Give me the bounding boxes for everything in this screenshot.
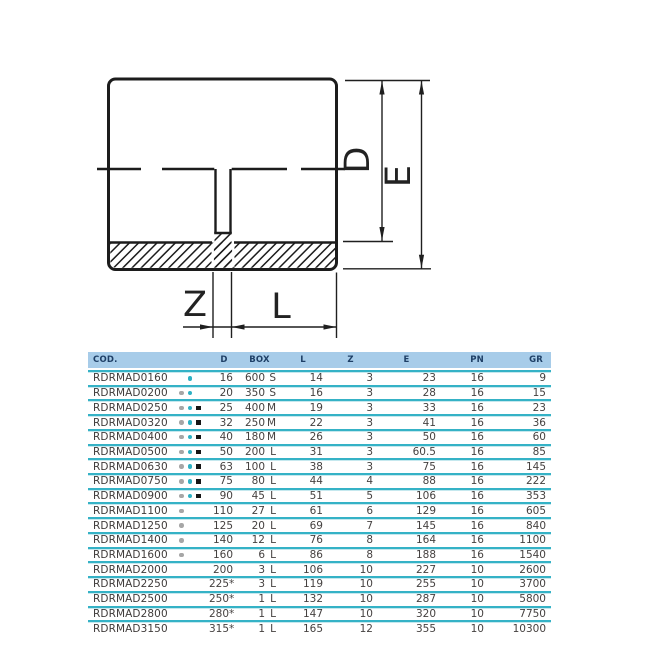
value-box: 1 L bbox=[239, 593, 280, 605]
value-pn: 10 bbox=[438, 564, 488, 576]
value-pn: 16 bbox=[438, 417, 488, 429]
value-z: 3 bbox=[326, 372, 375, 384]
value-pn: 16 bbox=[438, 431, 488, 443]
box-quantity: 27 bbox=[252, 505, 265, 517]
mark-gray-dot bbox=[179, 479, 184, 484]
value-z: 8 bbox=[326, 534, 375, 546]
value-l: 132 bbox=[280, 593, 326, 605]
product-code: RDRMAD0500 bbox=[88, 446, 175, 458]
value-d: 40 bbox=[209, 431, 239, 443]
value-e: 88 bbox=[375, 475, 438, 487]
value-e: 106 bbox=[375, 490, 438, 502]
box-size: L bbox=[265, 578, 276, 590]
value-e: 227 bbox=[375, 564, 438, 576]
value-e: 28 bbox=[375, 387, 438, 399]
value-e: 164 bbox=[375, 534, 438, 546]
value-d: 63 bbox=[209, 461, 239, 473]
value-l: 19 bbox=[280, 402, 326, 414]
box-quantity: 45 bbox=[252, 490, 265, 502]
value-l: 76 bbox=[280, 534, 326, 546]
value-d: 140 bbox=[209, 534, 239, 546]
product-code: RDRMAD1600 bbox=[88, 549, 175, 561]
value-box: 600 S bbox=[239, 372, 280, 384]
value-l: 61 bbox=[280, 505, 326, 517]
box-size: L bbox=[265, 564, 276, 576]
value-z: 10 bbox=[326, 578, 375, 590]
header-cod: COD. bbox=[88, 355, 175, 365]
value-e: 255 bbox=[375, 578, 438, 590]
mark-black-square bbox=[196, 479, 201, 484]
value-d: 280* bbox=[209, 608, 239, 620]
value-z: 3 bbox=[326, 431, 375, 443]
value-gr: 1100 bbox=[488, 534, 551, 546]
material-marks bbox=[175, 435, 209, 440]
value-z: 8 bbox=[326, 549, 375, 561]
value-box: 250 M bbox=[239, 417, 280, 429]
table-row: RDRMAD0630 63 100 L 38 3 75 16 145 bbox=[88, 458, 551, 473]
product-code: RDRMAD0160 bbox=[88, 372, 175, 384]
header-box: BOX bbox=[239, 355, 280, 365]
header-z: Z bbox=[326, 355, 375, 365]
product-code: RDRMAD2000 bbox=[88, 564, 175, 576]
product-code: RDRMAD2800 bbox=[88, 608, 175, 620]
value-gr: 3700 bbox=[488, 578, 551, 590]
mark-black-square bbox=[196, 420, 201, 425]
value-z: 10 bbox=[326, 564, 375, 576]
value-d: 50 bbox=[209, 446, 239, 458]
material-marks bbox=[175, 464, 209, 469]
material-marks bbox=[175, 582, 209, 587]
value-z: 4 bbox=[326, 475, 375, 487]
mark-gray-dot bbox=[179, 406, 184, 411]
value-l: 165 bbox=[280, 623, 326, 635]
material-marks bbox=[175, 494, 209, 499]
table-header-row: COD. D BOX L Z E PN GR bbox=[88, 352, 551, 368]
table-row: RDRMAD1400 140 12 L 76 8 164 16 1100 bbox=[88, 532, 551, 547]
value-z: 3 bbox=[326, 461, 375, 473]
value-pn: 16 bbox=[438, 402, 488, 414]
value-box: 1 L bbox=[239, 623, 280, 635]
value-d: 125 bbox=[209, 520, 239, 532]
value-z: 3 bbox=[326, 387, 375, 399]
header-gr: GR bbox=[488, 355, 551, 365]
value-pn: 16 bbox=[438, 490, 488, 502]
value-e: 188 bbox=[375, 549, 438, 561]
value-box: 200 L bbox=[239, 446, 280, 458]
value-pn: 16 bbox=[438, 534, 488, 546]
value-z: 12 bbox=[326, 623, 375, 635]
value-d: 225* bbox=[209, 578, 239, 590]
product-code: RDRMAD0200 bbox=[88, 387, 175, 399]
box-size: L bbox=[265, 490, 276, 502]
dim-label-D: D bbox=[338, 147, 378, 174]
product-code: RDRMAD1250 bbox=[88, 520, 175, 532]
value-box: 12 L bbox=[239, 534, 280, 546]
table-row: RDRMAD0900 90 45 L 51 5 106 16 353 bbox=[88, 488, 551, 503]
mark-teal-dot bbox=[188, 376, 193, 381]
value-gr: 353 bbox=[488, 490, 551, 502]
table-row: RDRMAD1600 160 6 L 86 8 188 16 1540 bbox=[88, 547, 551, 562]
product-code: RDRMAD0900 bbox=[88, 490, 175, 502]
box-size: L bbox=[265, 505, 276, 517]
value-gr: 605 bbox=[488, 505, 551, 517]
value-e: 60.5 bbox=[375, 446, 438, 458]
dim-label-E: E bbox=[379, 165, 419, 187]
value-gr: 2600 bbox=[488, 564, 551, 576]
value-d: 32 bbox=[209, 417, 239, 429]
product-code: RDRMAD2250 bbox=[88, 578, 175, 590]
material-marks bbox=[175, 420, 209, 425]
header-d: D bbox=[209, 355, 239, 365]
mark-gray-dot bbox=[179, 538, 184, 543]
value-e: 320 bbox=[375, 608, 438, 620]
value-e: 33 bbox=[375, 402, 438, 414]
value-pn: 16 bbox=[438, 549, 488, 561]
value-e: 41 bbox=[375, 417, 438, 429]
value-gr: 10300 bbox=[488, 623, 551, 635]
value-z: 6 bbox=[326, 505, 375, 517]
table-body: RDRMAD0160 16 600 S 14 3 23 16 9 RDRMAD0… bbox=[88, 370, 551, 635]
mark-black-square bbox=[196, 435, 201, 440]
value-pn: 16 bbox=[438, 387, 488, 399]
box-quantity: 100 bbox=[245, 461, 265, 473]
table-row: RDRMAD0400 40 180 M 26 3 50 16 60 bbox=[88, 429, 551, 444]
value-l: 69 bbox=[280, 520, 326, 532]
value-d: 90 bbox=[209, 490, 239, 502]
box-quantity: 180 bbox=[245, 431, 265, 443]
material-marks bbox=[175, 376, 209, 381]
box-quantity: 1 bbox=[258, 593, 265, 605]
value-box: 1 L bbox=[239, 608, 280, 620]
value-pn: 16 bbox=[438, 520, 488, 532]
value-pn: 16 bbox=[438, 505, 488, 517]
value-l: 31 bbox=[280, 446, 326, 458]
value-z: 3 bbox=[326, 402, 375, 414]
mark-black-square bbox=[196, 450, 201, 455]
mark-black-square bbox=[196, 406, 201, 411]
value-box: 100 L bbox=[239, 461, 280, 473]
value-gr: 85 bbox=[488, 446, 551, 458]
material-marks bbox=[175, 391, 209, 396]
product-code: RDRMAD3150 bbox=[88, 623, 175, 635]
box-size: M bbox=[265, 417, 276, 429]
box-size: L bbox=[265, 475, 276, 487]
value-gr: 7750 bbox=[488, 608, 551, 620]
value-pn: 10 bbox=[438, 623, 488, 635]
box-size: S bbox=[265, 372, 276, 384]
value-l: 147 bbox=[280, 608, 326, 620]
value-box: 45 L bbox=[239, 490, 280, 502]
box-quantity: 6 bbox=[258, 549, 265, 561]
value-gr: 145 bbox=[488, 461, 551, 473]
material-marks bbox=[175, 626, 209, 631]
value-z: 5 bbox=[326, 490, 375, 502]
table-row: RDRMAD2000 200 3 L 106 10 227 10 2600 bbox=[88, 561, 551, 576]
material-marks bbox=[175, 479, 209, 484]
mark-teal-dot bbox=[188, 391, 193, 396]
value-e: 355 bbox=[375, 623, 438, 635]
mark-gray-dot bbox=[179, 553, 184, 558]
mark-gray-dot bbox=[179, 420, 184, 425]
box-quantity: 600 bbox=[245, 372, 265, 384]
value-d: 16 bbox=[209, 372, 239, 384]
table-row: RDRMAD2500 250* 1 L 132 10 287 10 5800 bbox=[88, 591, 551, 606]
box-quantity: 350 bbox=[245, 387, 265, 399]
product-code: RDRMAD0250 bbox=[88, 402, 175, 414]
value-gr: 15 bbox=[488, 387, 551, 399]
value-z: 3 bbox=[326, 417, 375, 429]
box-size: L bbox=[265, 461, 276, 473]
material-marks bbox=[175, 553, 209, 558]
box-quantity: 250 bbox=[245, 417, 265, 429]
box-quantity: 3 bbox=[258, 564, 265, 576]
value-z: 10 bbox=[326, 608, 375, 620]
value-box: 80 L bbox=[239, 475, 280, 487]
header-e: E bbox=[375, 355, 438, 365]
value-gr: 60 bbox=[488, 431, 551, 443]
box-size: L bbox=[265, 446, 276, 458]
value-pn: 10 bbox=[438, 608, 488, 620]
product-code: RDRMAD0750 bbox=[88, 475, 175, 487]
mark-black-square bbox=[196, 464, 201, 469]
table-row: RDRMAD0500 50 200 L 31 3 60.5 16 85 bbox=[88, 444, 551, 459]
value-gr: 9 bbox=[488, 372, 551, 384]
value-z: 3 bbox=[326, 446, 375, 458]
value-l: 16 bbox=[280, 387, 326, 399]
table-row: RDRMAD2800 280* 1 L 147 10 320 10 7750 bbox=[88, 606, 551, 621]
mark-teal-dot bbox=[188, 494, 193, 499]
value-gr: 840 bbox=[488, 520, 551, 532]
value-box: 20 L bbox=[239, 520, 280, 532]
mark-gray-dot bbox=[179, 391, 184, 396]
value-z: 10 bbox=[326, 593, 375, 605]
value-d: 250* bbox=[209, 593, 239, 605]
value-e: 23 bbox=[375, 372, 438, 384]
dimension-lines bbox=[183, 81, 431, 339]
box-size: L bbox=[265, 549, 276, 561]
value-gr: 1540 bbox=[488, 549, 551, 561]
value-e: 75 bbox=[375, 461, 438, 473]
box-quantity: 20 bbox=[252, 520, 265, 532]
box-quantity: 400 bbox=[245, 402, 265, 414]
header-pn: PN bbox=[438, 355, 488, 365]
fitting-section-drawing: D E Z L bbox=[0, 0, 650, 352]
value-pn: 16 bbox=[438, 372, 488, 384]
mark-teal-dot bbox=[188, 435, 193, 440]
value-l: 86 bbox=[280, 549, 326, 561]
material-marks bbox=[175, 567, 209, 572]
value-box: 27 L bbox=[239, 505, 280, 517]
value-d: 110 bbox=[209, 505, 239, 517]
value-l: 44 bbox=[280, 475, 326, 487]
material-marks bbox=[175, 597, 209, 602]
box-size: M bbox=[265, 431, 276, 443]
value-pn: 10 bbox=[438, 578, 488, 590]
value-d: 315* bbox=[209, 623, 239, 635]
mark-gray-dot bbox=[179, 523, 184, 528]
box-quantity: 1 bbox=[258, 608, 265, 620]
value-gr: 5800 bbox=[488, 593, 551, 605]
box-size: L bbox=[265, 593, 276, 605]
center-ridge-hatch bbox=[215, 233, 232, 268]
value-e: 145 bbox=[375, 520, 438, 532]
material-marks bbox=[175, 509, 209, 514]
table-row: RDRMAD0160 16 600 S 14 3 23 16 9 bbox=[88, 370, 551, 385]
table-row: RDRMAD0750 75 80 L 44 4 88 16 222 bbox=[88, 473, 551, 488]
value-pn: 16 bbox=[438, 446, 488, 458]
product-code: RDRMAD0320 bbox=[88, 417, 175, 429]
catalog-page: D E Z L COD. D BOX L Z E PN GR RDRMAD016… bbox=[0, 0, 650, 650]
value-l: 22 bbox=[280, 417, 326, 429]
box-quantity: 12 bbox=[252, 534, 265, 546]
box-quantity: 200 bbox=[245, 446, 265, 458]
value-d: 75 bbox=[209, 475, 239, 487]
value-box: 3 L bbox=[239, 564, 280, 576]
value-gr: 222 bbox=[488, 475, 551, 487]
box-quantity: 80 bbox=[252, 475, 265, 487]
mark-gray-dot bbox=[179, 509, 184, 514]
value-d: 25 bbox=[209, 402, 239, 414]
box-size: L bbox=[265, 623, 276, 635]
socket-step-lines bbox=[97, 169, 345, 233]
value-gr: 36 bbox=[488, 417, 551, 429]
table-row: RDRMAD1250 125 20 L 69 7 145 16 840 bbox=[88, 517, 551, 532]
mark-teal-dot bbox=[188, 406, 193, 411]
value-e: 129 bbox=[375, 505, 438, 517]
mark-gray-dot bbox=[179, 494, 184, 499]
table-row: RDRMAD1100 110 27 L 61 6 129 16 605 bbox=[88, 502, 551, 517]
value-d: 20 bbox=[209, 387, 239, 399]
box-size: M bbox=[265, 402, 276, 414]
product-code: RDRMAD2500 bbox=[88, 593, 175, 605]
value-l: 14 bbox=[280, 372, 326, 384]
product-code: RDRMAD1400 bbox=[88, 534, 175, 546]
value-gr: 23 bbox=[488, 402, 551, 414]
mark-black-square bbox=[196, 494, 201, 499]
table-row: RDRMAD2250 225* 3 L 119 10 255 10 3700 bbox=[88, 576, 551, 591]
dimension-arrows bbox=[200, 81, 424, 330]
product-code: RDRMAD1100 bbox=[88, 505, 175, 517]
box-size: S bbox=[265, 387, 276, 399]
product-code: RDRMAD0630 bbox=[88, 461, 175, 473]
material-marks bbox=[175, 538, 209, 543]
product-code: RDRMAD0400 bbox=[88, 431, 175, 443]
value-e: 50 bbox=[375, 431, 438, 443]
value-d: 160 bbox=[209, 549, 239, 561]
mark-teal-dot bbox=[188, 450, 193, 455]
box-size: L bbox=[265, 534, 276, 546]
material-marks bbox=[175, 450, 209, 455]
dim-label-Z: Z bbox=[183, 285, 207, 325]
value-pn: 10 bbox=[438, 593, 488, 605]
value-l: 38 bbox=[280, 461, 326, 473]
material-marks bbox=[175, 612, 209, 617]
box-quantity: 3 bbox=[258, 578, 265, 590]
header-l: L bbox=[280, 355, 326, 365]
table-row: RDRMAD0200 20 350 S 16 3 28 16 15 bbox=[88, 385, 551, 400]
value-pn: 16 bbox=[438, 461, 488, 473]
value-l: 51 bbox=[280, 490, 326, 502]
table-row: RDRMAD0250 25 400 M 19 3 33 16 23 bbox=[88, 399, 551, 414]
material-marks bbox=[175, 406, 209, 411]
mark-gray-dot bbox=[179, 464, 184, 469]
material-marks bbox=[175, 523, 209, 528]
dim-label-L: L bbox=[271, 287, 291, 327]
value-box: 350 S bbox=[239, 387, 280, 399]
mark-teal-dot bbox=[188, 420, 193, 425]
mark-gray-dot bbox=[179, 435, 184, 440]
box-quantity: 1 bbox=[258, 623, 265, 635]
value-pn: 16 bbox=[438, 475, 488, 487]
value-z: 7 bbox=[326, 520, 375, 532]
value-l: 106 bbox=[280, 564, 326, 576]
value-e: 287 bbox=[375, 593, 438, 605]
box-size: L bbox=[265, 608, 276, 620]
value-l: 119 bbox=[280, 578, 326, 590]
value-box: 6 L bbox=[239, 549, 280, 561]
table-row: RDRMAD3150 315* 1 L 165 12 355 10 10300 bbox=[88, 620, 551, 635]
value-l: 26 bbox=[280, 431, 326, 443]
value-box: 400 M bbox=[239, 402, 280, 414]
value-box: 3 L bbox=[239, 578, 280, 590]
mark-teal-dot bbox=[188, 464, 193, 469]
box-size: L bbox=[265, 520, 276, 532]
value-box: 180 M bbox=[239, 431, 280, 443]
mark-teal-dot bbox=[188, 479, 193, 484]
table-row: RDRMAD0320 32 250 M 22 3 41 16 36 bbox=[88, 414, 551, 429]
mark-gray-dot bbox=[179, 450, 184, 455]
dimension-table: COD. D BOX L Z E PN GR RDRMAD0160 16 600… bbox=[88, 352, 551, 635]
value-d: 200 bbox=[209, 564, 239, 576]
